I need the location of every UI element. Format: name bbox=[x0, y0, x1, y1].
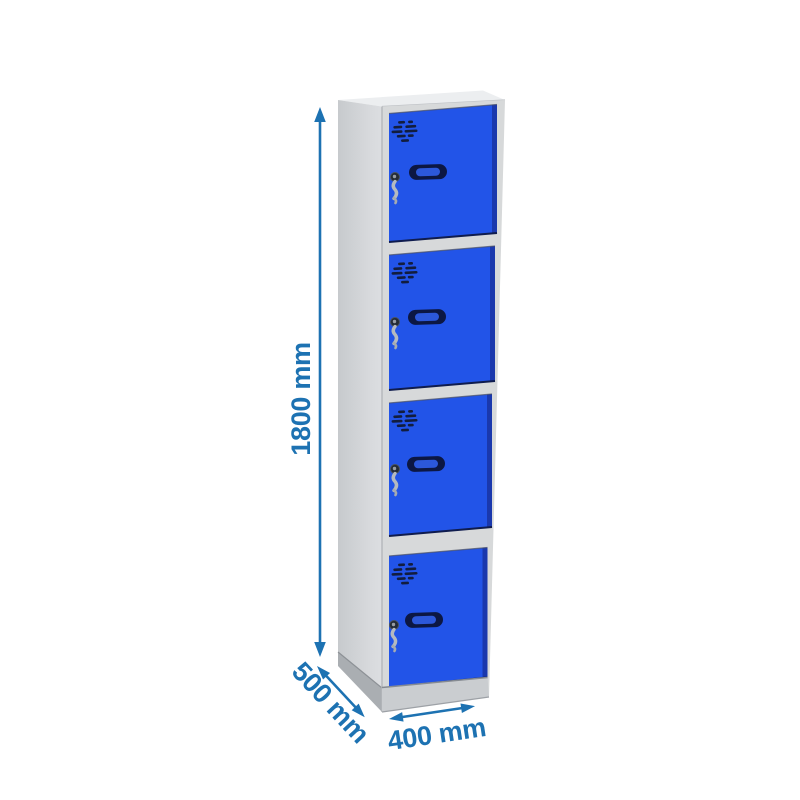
arrow-up-icon bbox=[314, 107, 326, 122]
door-handle bbox=[408, 309, 447, 325]
locker-door-4 bbox=[389, 548, 488, 688]
door-handle bbox=[405, 612, 444, 628]
door-right-shadow bbox=[490, 246, 495, 381]
diagram-canvas: 1800 mm 500 mm 400 mm bbox=[0, 0, 800, 800]
door-handle bbox=[409, 164, 448, 180]
height-dimension: 1800 mm bbox=[286, 107, 326, 657]
locker-cabinet bbox=[338, 91, 505, 713]
locker-door-2 bbox=[389, 246, 495, 390]
product-dimension-diagram: 1800 mm 500 mm 400 mm bbox=[0, 0, 800, 800]
locker-door-1 bbox=[389, 105, 497, 243]
locker-door-3 bbox=[389, 394, 492, 536]
height-dimension-label: 1800 mm bbox=[286, 342, 316, 455]
door-right-shadow bbox=[483, 548, 488, 679]
cabinet-side-panel bbox=[338, 100, 382, 688]
arrow-down-icon bbox=[314, 642, 326, 657]
arrow-right-icon bbox=[460, 701, 475, 713]
door-right-shadow bbox=[487, 394, 492, 527]
door-handle bbox=[407, 456, 446, 472]
arrow-left-icon bbox=[388, 712, 403, 724]
door-right-shadow bbox=[492, 105, 497, 234]
